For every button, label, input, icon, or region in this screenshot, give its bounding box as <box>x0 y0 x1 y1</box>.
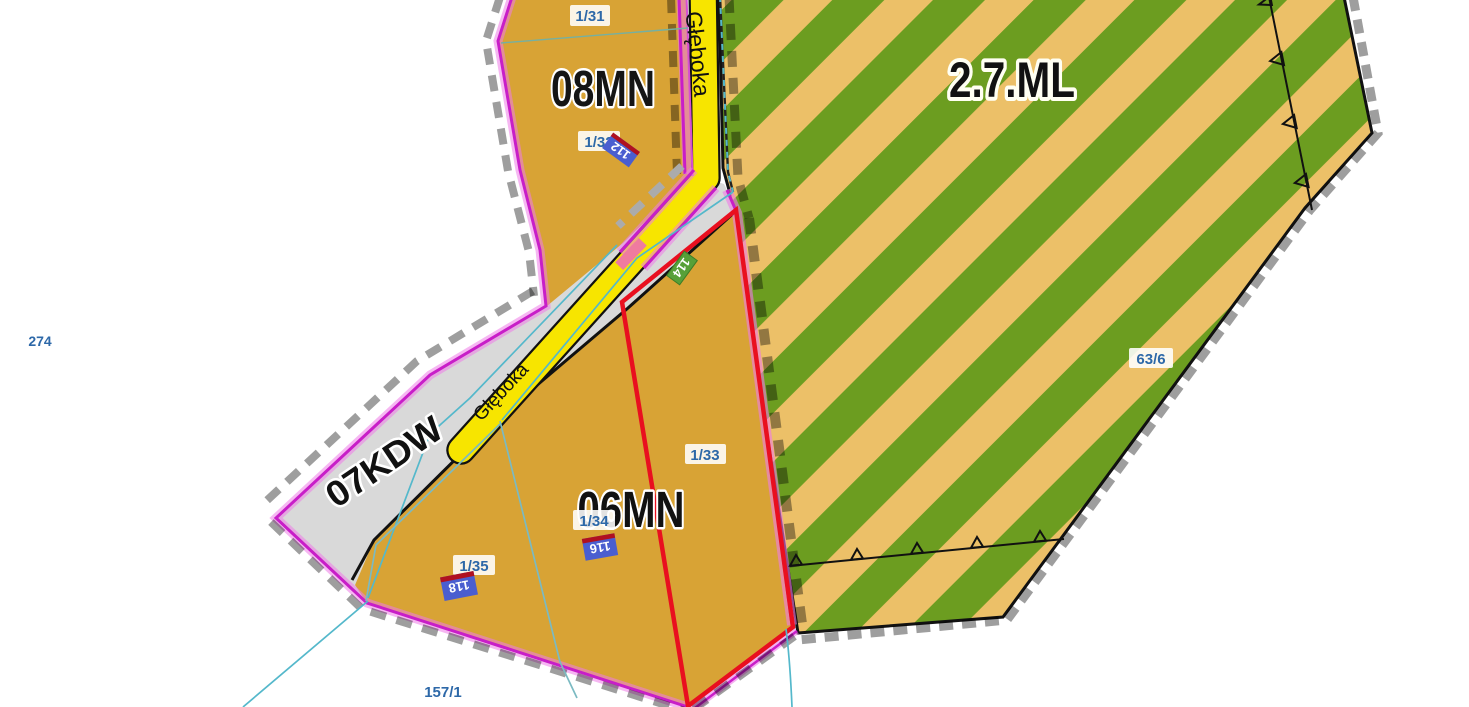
svg-text:2.7.ML: 2.7.ML <box>949 52 1075 108</box>
svg-text:63/6: 63/6 <box>1136 351 1165 368</box>
svg-text:157/1: 157/1 <box>424 684 462 701</box>
svg-text:1/35: 1/35 <box>459 558 488 575</box>
svg-text:1/33: 1/33 <box>690 447 719 464</box>
svg-text:274: 274 <box>28 333 52 349</box>
svg-text:1/34: 1/34 <box>579 513 609 530</box>
svg-text:08MN: 08MN <box>551 60 655 117</box>
svg-text:1/31: 1/31 <box>575 8 604 25</box>
